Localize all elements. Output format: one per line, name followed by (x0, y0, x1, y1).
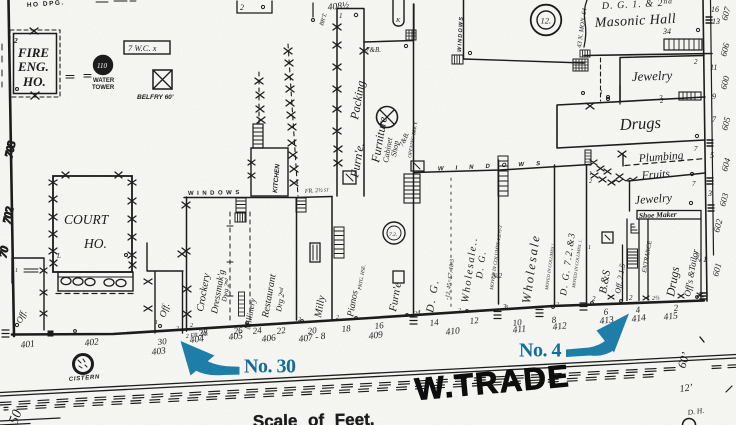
svg-text:2: 2 (694, 58, 698, 66)
svg-text:2: 2 (589, 179, 592, 185)
svg-text:2½: 2½ (652, 295, 660, 302)
svg-text:2: 2 (13, 36, 18, 45)
svg-text:7&B.: 7&B. (366, 46, 381, 54)
svg-text:415: 415 (663, 311, 679, 323)
svg-text:L: L (56, 252, 61, 260)
svg-text:1: 1 (600, 90, 603, 96)
svg-text:414: 414 (631, 313, 647, 325)
svg-text:7: 7 (692, 180, 696, 188)
svg-text:1: 1 (339, 12, 343, 20)
svg-text:No. 4: No. 4 (519, 340, 561, 362)
svg-text:Fruits.: Fruits. (640, 168, 673, 182)
svg-text:1: 1 (703, 255, 707, 264)
svg-text:Jewelry: Jewelry (632, 68, 673, 84)
svg-text:Shoe Maker: Shoe Maker (639, 210, 677, 220)
svg-text:2: 2 (298, 317, 301, 323)
svg-text:Jewelry: Jewelry (634, 190, 673, 207)
svg-text:Drugs: Drugs (618, 113, 661, 134)
svg-text:4: 4 (417, 309, 421, 317)
svg-text:12: 12 (469, 315, 480, 326)
svg-text:COURT: COURT (64, 212, 110, 227)
svg-text:TOWER: TOWER (92, 85, 115, 91)
svg-text:12.: 12. (541, 16, 552, 26)
svg-text:2: 2 (414, 311, 417, 317)
svg-text:FIRE: FIRE (17, 45, 49, 60)
svg-text:409: 409 (368, 330, 384, 342)
svg-text:2: 2 (336, 315, 339, 321)
svg-text:410: 410 (445, 326, 461, 338)
svg-text:14: 14 (429, 317, 440, 328)
svg-text:412: 412 (552, 321, 568, 333)
svg-text:7 W.C. x: 7 W.C. x (128, 43, 157, 53)
svg-text:2: 2 (629, 294, 633, 302)
svg-text:405: 405 (228, 331, 244, 343)
svg-text:No. 30: No. 30 (244, 356, 296, 378)
svg-text:7.2.: 7.2. (389, 232, 397, 238)
svg-text:3: 3 (707, 189, 712, 198)
svg-text:2: 2 (240, 3, 244, 12)
svg-text:3: 3 (504, 305, 508, 311)
svg-text:HO.: HO. (22, 74, 46, 89)
svg-text:110: 110 (97, 62, 107, 70)
svg-text:5: 5 (710, 151, 714, 160)
svg-text:34: 34 (662, 27, 671, 36)
svg-text:406: 406 (261, 333, 277, 345)
svg-text:403: 403 (151, 346, 167, 358)
svg-text:2: 2 (458, 308, 461, 314)
svg-text:11: 11 (710, 63, 717, 72)
svg-text:411: 411 (512, 324, 527, 336)
svg-text:12’: 12’ (679, 382, 694, 395)
svg-text:WATER: WATER (93, 78, 115, 84)
svg-text:Scale of Feet.: Scale of Feet. (253, 410, 375, 425)
svg-text:ENG.: ENG. (17, 59, 49, 74)
svg-text:2: 2 (592, 295, 596, 303)
svg-text:WINDOWS: WINDOWS (188, 190, 243, 197)
svg-text:2: 2 (660, 97, 664, 105)
svg-text:2: 2 (190, 323, 193, 329)
svg-text:HO.: HO. (83, 236, 107, 251)
svg-text:2: 2 (176, 326, 179, 332)
svg-text:18: 18 (341, 323, 352, 334)
svg-text:1: 1 (589, 171, 592, 177)
svg-text:13: 13 (712, 17, 720, 26)
svg-text:№2: №2 (491, 272, 503, 280)
svg-text:BELFRY 60’: BELFRY 60’ (137, 94, 174, 101)
svg-text:30: 30 (156, 336, 168, 347)
svg-text:7: 7 (694, 145, 698, 153)
svg-text:402: 402 (84, 337, 100, 349)
svg-text:1: 1 (155, 320, 158, 326)
svg-text:22: 22 (276, 325, 287, 336)
svg-text:K: K (395, 17, 401, 24)
svg-text:1: 1 (588, 245, 591, 251)
svg-text:9: 9 (712, 92, 716, 101)
svg-text:1: 1 (15, 268, 18, 274)
svg-text:2: 2 (556, 302, 559, 308)
svg-text:401: 401 (20, 339, 35, 351)
svg-text:16: 16 (374, 320, 385, 331)
svg-text:16: 16 (711, 5, 719, 14)
